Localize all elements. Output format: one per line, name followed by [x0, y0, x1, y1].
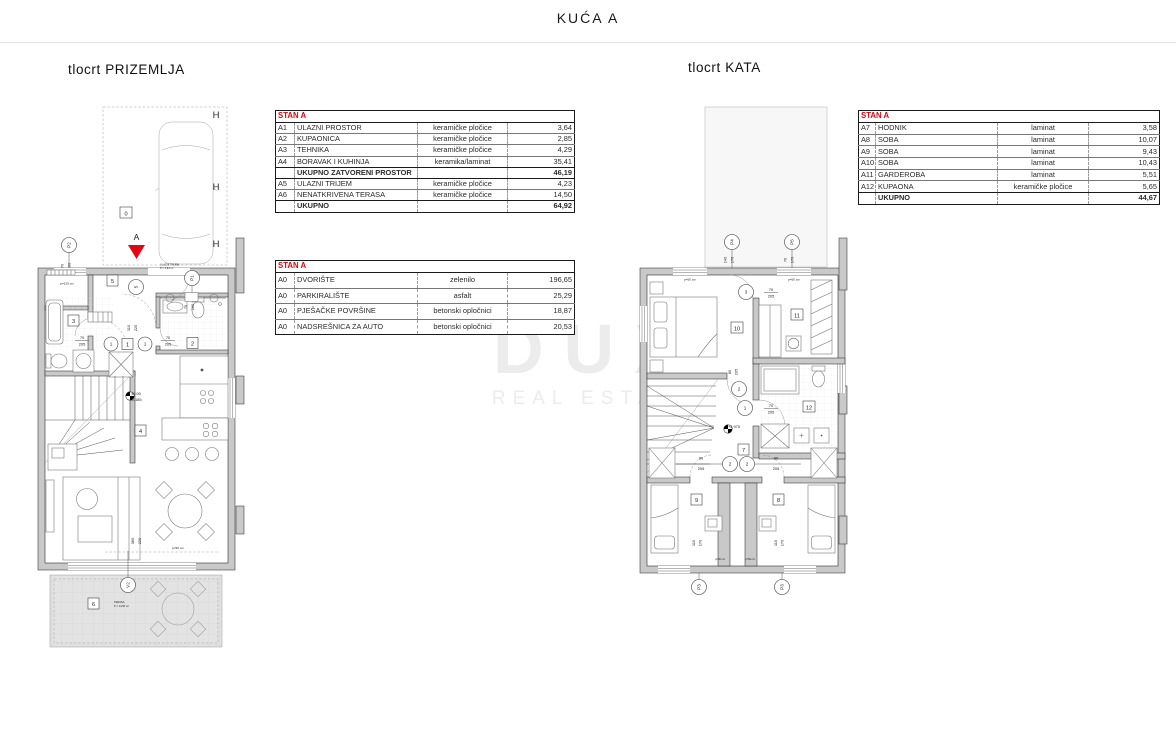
- dim-110: 110: [691, 539, 696, 546]
- level-value-sub: -0,185: [130, 397, 141, 402]
- carport: H H H 0: [103, 107, 227, 265]
- door-mark-1: 1: [744, 406, 747, 411]
- dim-205: 205: [734, 369, 739, 376]
- marker-p4-label: P4: [730, 239, 735, 245]
- table-row: A0 NADSREŠNICA ZA AUTO betonski opločnic…: [276, 319, 575, 335]
- parapet-note-50: p=50 cm: [715, 557, 725, 561]
- dim-205: 205: [768, 294, 775, 299]
- cell-room-area: 10,43: [1089, 158, 1160, 170]
- door-mark-2: 2: [738, 387, 741, 392]
- dim-70: 70: [60, 263, 65, 268]
- section-marker: A: [128, 232, 145, 259]
- room-box-5: 5: [111, 279, 114, 285]
- cell-room-area: 46,19: [508, 167, 575, 178]
- cell-room-material: keramičke pločice: [998, 181, 1089, 193]
- cell-room-material: keramičke pločice: [418, 134, 508, 145]
- cell-room-code: A0: [276, 319, 295, 335]
- cell-room-material: asfalt: [418, 288, 508, 304]
- cell-room-area: 4,29: [508, 145, 575, 156]
- h-column-label: H: [213, 239, 220, 250]
- cell-room-area: 25,29: [508, 288, 575, 304]
- title-divider: [0, 42, 1176, 43]
- dim-170: 170: [730, 256, 735, 263]
- dim-100: 100: [190, 303, 195, 310]
- cell-room-area: 2,85: [508, 134, 575, 145]
- cell-room-name: ULAZNI TRIJEM: [295, 178, 418, 189]
- cell-room-material: laminat: [998, 169, 1089, 181]
- cell-room-name: KUPAONICA: [295, 134, 418, 145]
- dim-220: 220: [137, 537, 142, 544]
- dim-110: 110: [126, 324, 131, 331]
- cell-room-area: 10,07: [1089, 134, 1160, 146]
- ground-floor-area-table: STAN A A1 ULAZNI PROSTOR keramičke ploči…: [275, 110, 575, 213]
- room-box-2: 2: [191, 342, 194, 348]
- upper-floor-plan: P4 140 170 P5 70 170: [628, 88, 858, 623]
- cell-room-name: PARKIRALIŠTE: [295, 288, 418, 304]
- cell-room-name: HODNIK: [876, 123, 998, 135]
- cell-room-code: A5: [276, 178, 295, 189]
- cell-room-area: 18,87: [508, 304, 575, 320]
- dim-110: 110: [773, 539, 778, 546]
- cell-room-material: keramičke pločice: [418, 123, 508, 134]
- cell-room-code: A3: [276, 145, 295, 156]
- table-title: STAN A: [859, 111, 1160, 123]
- level-value: +2,975: [728, 424, 740, 429]
- parapet-note-90: p=90 cm: [172, 546, 184, 550]
- marker-v2-label: V2: [126, 582, 131, 588]
- table-row: A2 KUPAONICA keramičke pločice 2,85: [276, 134, 575, 145]
- dim-360: 360: [130, 537, 135, 544]
- room-box-1: 1: [126, 343, 129, 349]
- cell-room-material: keramičke pločice: [418, 190, 508, 201]
- cell-room-name: BORAVAK I KUHINJA: [295, 156, 418, 167]
- marker-p2-label: P2: [67, 242, 72, 248]
- table-row: A5 ULAZNI TRIJEM keramičke pločice 4,23: [276, 178, 575, 189]
- cell-room-material: [998, 193, 1089, 205]
- cell-room-material: keramika/laminat: [418, 156, 508, 167]
- marker-p3-label: P3: [780, 584, 785, 590]
- door-mark-1: 1: [144, 342, 147, 347]
- h-column-label: H: [213, 182, 220, 193]
- cell-room-code: A2: [276, 134, 295, 145]
- cell-room-area: 4,23: [508, 178, 575, 189]
- table-header-row: STAN A: [276, 111, 575, 123]
- room-box-12: 12: [806, 405, 812, 411]
- cell-room-name: PJEŠAČKE POVRŠINE: [295, 304, 418, 320]
- cell-room-code: A10: [859, 158, 876, 170]
- dim-205: 205: [768, 410, 775, 415]
- table-row: A0 PARKIRALIŠTE asfalt 25,29: [276, 288, 575, 304]
- cell-room-code: A9: [859, 146, 876, 158]
- cell-room-area: 64,92: [508, 201, 575, 212]
- table-row: UKUPNO 64,92: [276, 201, 575, 212]
- parapet-note-50: p=50 cm: [788, 278, 800, 282]
- cell-room-code: A1: [276, 123, 295, 134]
- drawing-sheet: KUĆA A DUX REAL ESTATE tlocrt PRIZEMLJA …: [0, 0, 1176, 747]
- dim-170: 170: [698, 539, 703, 546]
- cell-room-name: SOBA: [876, 146, 998, 158]
- cell-room-code: A6: [276, 190, 295, 201]
- zone-0-label: 0: [124, 211, 127, 217]
- table-row: A10 SOBA laminat 10,43: [859, 158, 1160, 170]
- cell-room-name: SOBA: [876, 158, 998, 170]
- porch-label: ULAZNI TRIJEM: [160, 263, 179, 267]
- table-row: UKUPNO 44,67: [859, 193, 1160, 205]
- upper-floor-area-table: STAN A A7 HODNIK laminat 3,58 A8 SOBA la…: [858, 110, 1160, 205]
- cell-room-code: A4: [276, 156, 295, 167]
- marker-p3-label: P3: [697, 584, 702, 590]
- parapet-note-50: p=50 cm: [684, 278, 696, 282]
- porch-area: P = 4,94 m²: [160, 266, 174, 270]
- table-row: A9 SOBA laminat 9,43: [859, 146, 1160, 158]
- cell-room-name: NENATKRIVENA TERASA: [295, 190, 418, 201]
- cell-room-material: betonski opločnici: [418, 304, 508, 320]
- door-mark-2: 2: [729, 462, 732, 467]
- cell-room-name: NADSREŠNICA ZA AUTO: [295, 319, 418, 335]
- dim-170: 170: [780, 539, 785, 546]
- dim-205: 205: [165, 342, 172, 347]
- room-box-4: 4: [139, 429, 142, 435]
- cell-room-material: zelenilo: [418, 273, 508, 289]
- cell-room-name: KUPAONA: [876, 181, 998, 193]
- section-letter: A: [134, 232, 140, 242]
- cell-room-area: 3,58: [1089, 123, 1160, 135]
- cell-room-name: UKUPNO ZATVORENI PROSTOR: [295, 167, 418, 178]
- page-title: KUĆA A: [0, 10, 1176, 26]
- table-row: A4 BORAVAK I KUHINJA keramika/laminat 35…: [276, 156, 575, 167]
- cell-room-area: 20,53: [508, 319, 575, 335]
- cell-room-code: [859, 193, 876, 205]
- dim-205: 205: [773, 466, 780, 471]
- cell-room-area: 196,65: [508, 273, 575, 289]
- roof-outline: [705, 107, 827, 267]
- cell-room-code: A0: [276, 273, 295, 289]
- cell-room-area: 3,64: [508, 123, 575, 134]
- cell-room-area: 44,67: [1089, 193, 1160, 205]
- door-mark-1: 1: [110, 342, 113, 347]
- table-row: A0 DVORIŠTE zelenilo 196,65: [276, 273, 575, 289]
- table-header-row: STAN A: [859, 111, 1160, 123]
- room-box-7: 7: [742, 448, 745, 454]
- door-mark-3: 3: [745, 290, 748, 295]
- cell-room-area: 5,65: [1089, 181, 1160, 193]
- cell-room-code: [276, 201, 295, 212]
- cell-room-name: DVORIŠTE: [295, 273, 418, 289]
- cell-room-code: A0: [276, 288, 295, 304]
- room-box-10: 10: [734, 326, 740, 332]
- cell-room-area: 14,50: [508, 190, 575, 201]
- parapet-note: p=120 cm: [60, 282, 74, 286]
- cell-room-area: 35,41: [508, 156, 575, 167]
- room-box-8: 8: [777, 498, 780, 504]
- section-arrow-icon: [128, 245, 145, 259]
- table-title: STAN A: [276, 261, 575, 273]
- cell-room-material: [418, 167, 508, 178]
- terrace-area: P = 14,50 m²: [114, 604, 129, 608]
- cell-room-name: TEHNIKA: [295, 145, 418, 156]
- cell-room-area: 9,43: [1089, 146, 1160, 158]
- cell-room-material: laminat: [998, 123, 1089, 135]
- site-area-table: STAN A A0 DVORIŠTE zelenilo 196,65 A0 PA…: [275, 260, 575, 335]
- table-row: A3 TEHNIKA keramičke pločice 4,29: [276, 145, 575, 156]
- cell-room-material: keramičke pločice: [418, 178, 508, 189]
- cell-room-material: laminat: [998, 134, 1089, 146]
- dim-220: 220: [133, 324, 138, 331]
- cell-room-name: UKUPNO: [876, 193, 998, 205]
- ground-floor-plan: H H H 0 A P2 70 100: [30, 88, 245, 673]
- cell-room-name: GARDEROBA: [876, 169, 998, 181]
- cell-room-code: A7: [859, 123, 876, 135]
- cell-room-material: keramičke pločice: [418, 145, 508, 156]
- level-value: ±0.00: [131, 391, 142, 396]
- cell-room-material: [418, 201, 508, 212]
- cell-room-code: A12: [859, 181, 876, 193]
- dim-205: 205: [698, 466, 705, 471]
- table-row: A11 GARDEROBA laminat 5,51: [859, 169, 1160, 181]
- marker-p5-label: P5: [790, 239, 795, 245]
- cell-room-material: betonski opločnici: [418, 319, 508, 335]
- table-row: A1 ULAZNI PROSTOR keramičke pločice 3,64: [276, 123, 575, 134]
- table-title: STAN A: [276, 111, 575, 123]
- door-mark-2: 2: [746, 462, 749, 467]
- room-box-3: 3: [72, 319, 75, 325]
- cell-room-code: [276, 167, 295, 178]
- cell-room-name: UKUPNO: [295, 201, 418, 212]
- cell-room-name: SOBA: [876, 134, 998, 146]
- h-column-label: H: [213, 110, 220, 121]
- table-row: A12 KUPAONA keramičke pločice 5,65: [859, 181, 1160, 193]
- dim-170: 170: [790, 256, 795, 263]
- marker-p1-label: P1: [190, 275, 195, 281]
- cell-room-area: 5,51: [1089, 169, 1160, 181]
- room-box-11: 11: [794, 313, 800, 319]
- cell-room-code: A8: [859, 134, 876, 146]
- table-row: A0 PJEŠAČKE POVRŠINE betonski opločnici …: [276, 304, 575, 320]
- cell-room-code: A11: [859, 169, 876, 181]
- dim-205: 205: [79, 342, 86, 347]
- parapet-note-50: p=50 cm: [745, 557, 755, 561]
- room-box-9: 9: [695, 498, 698, 504]
- cell-room-name: ULAZNI PROSTOR: [295, 123, 418, 134]
- cell-room-material: laminat: [998, 146, 1089, 158]
- table-row: UKUPNO ZATVORENI PROSTOR 46,19: [276, 167, 575, 178]
- room-box-6: 6: [92, 602, 95, 608]
- cell-room-material: laminat: [998, 158, 1089, 170]
- dim-140: 140: [723, 256, 728, 263]
- table-row: A6 NENATKRIVENA TERASA keramičke pločice…: [276, 190, 575, 201]
- table-row: A7 HODNIK laminat 3,58: [859, 123, 1160, 135]
- table-header-row: STAN A: [276, 261, 575, 273]
- upper-floor-heading: tlocrt KATA: [688, 60, 761, 75]
- terrace-label: TERASA: [114, 600, 125, 604]
- table-row: A8 SOBA laminat 10,07: [859, 134, 1160, 146]
- cell-room-code: A0: [276, 304, 295, 320]
- window-mark-5: 5: [134, 285, 139, 288]
- ground-floor-heading: tlocrt PRIZEMLJA: [68, 62, 185, 77]
